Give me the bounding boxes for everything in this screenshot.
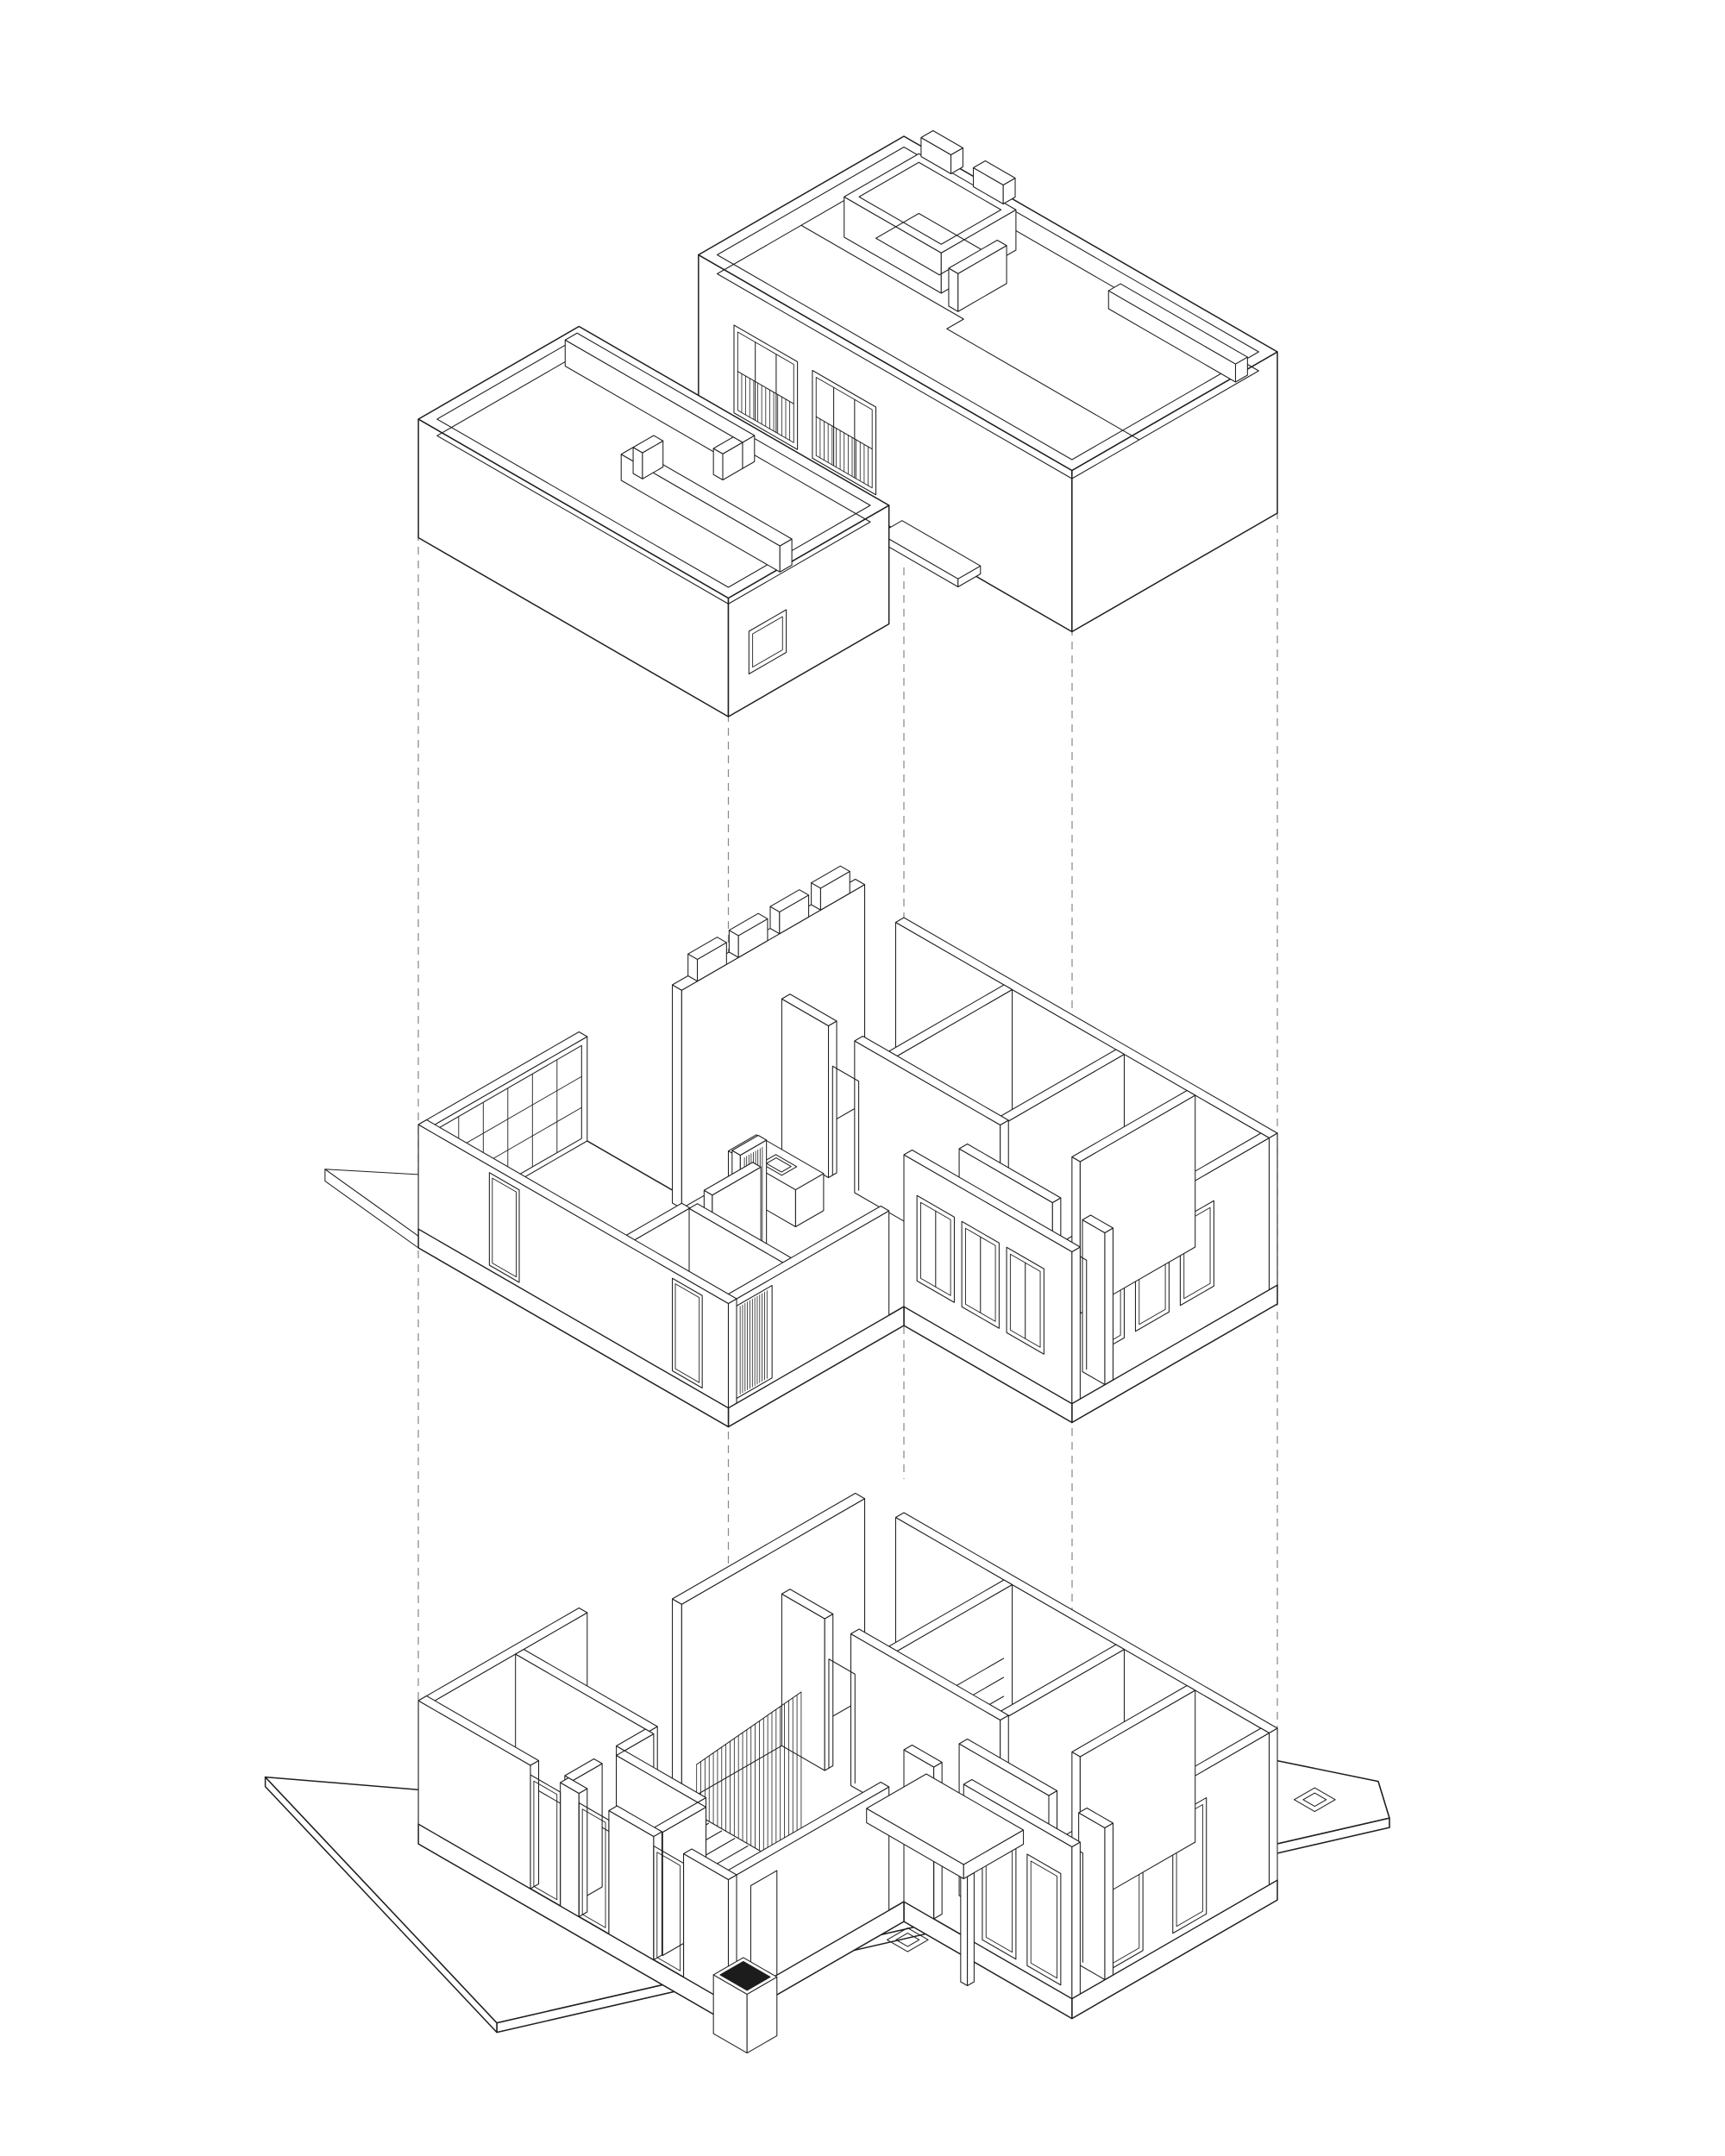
drawing-sheet bbox=[0, 0, 1725, 2156]
corridor-wall bbox=[1082, 1220, 1105, 1385]
stair-hall-wall bbox=[673, 985, 682, 1208]
deck-wall-stub bbox=[949, 268, 958, 311]
spine-wall bbox=[781, 999, 828, 1177]
exploded-axonometric-drawing bbox=[0, 0, 1725, 2156]
stair-hall-wall bbox=[673, 1599, 682, 1803]
front-wall bbox=[561, 1783, 580, 1917]
canopy-column bbox=[961, 1873, 968, 1986]
upper-floor-level bbox=[325, 866, 1277, 1426]
spine-wall bbox=[781, 1594, 825, 1771]
ground-floor-level bbox=[266, 1494, 1389, 2053]
roof-level bbox=[418, 131, 1277, 718]
